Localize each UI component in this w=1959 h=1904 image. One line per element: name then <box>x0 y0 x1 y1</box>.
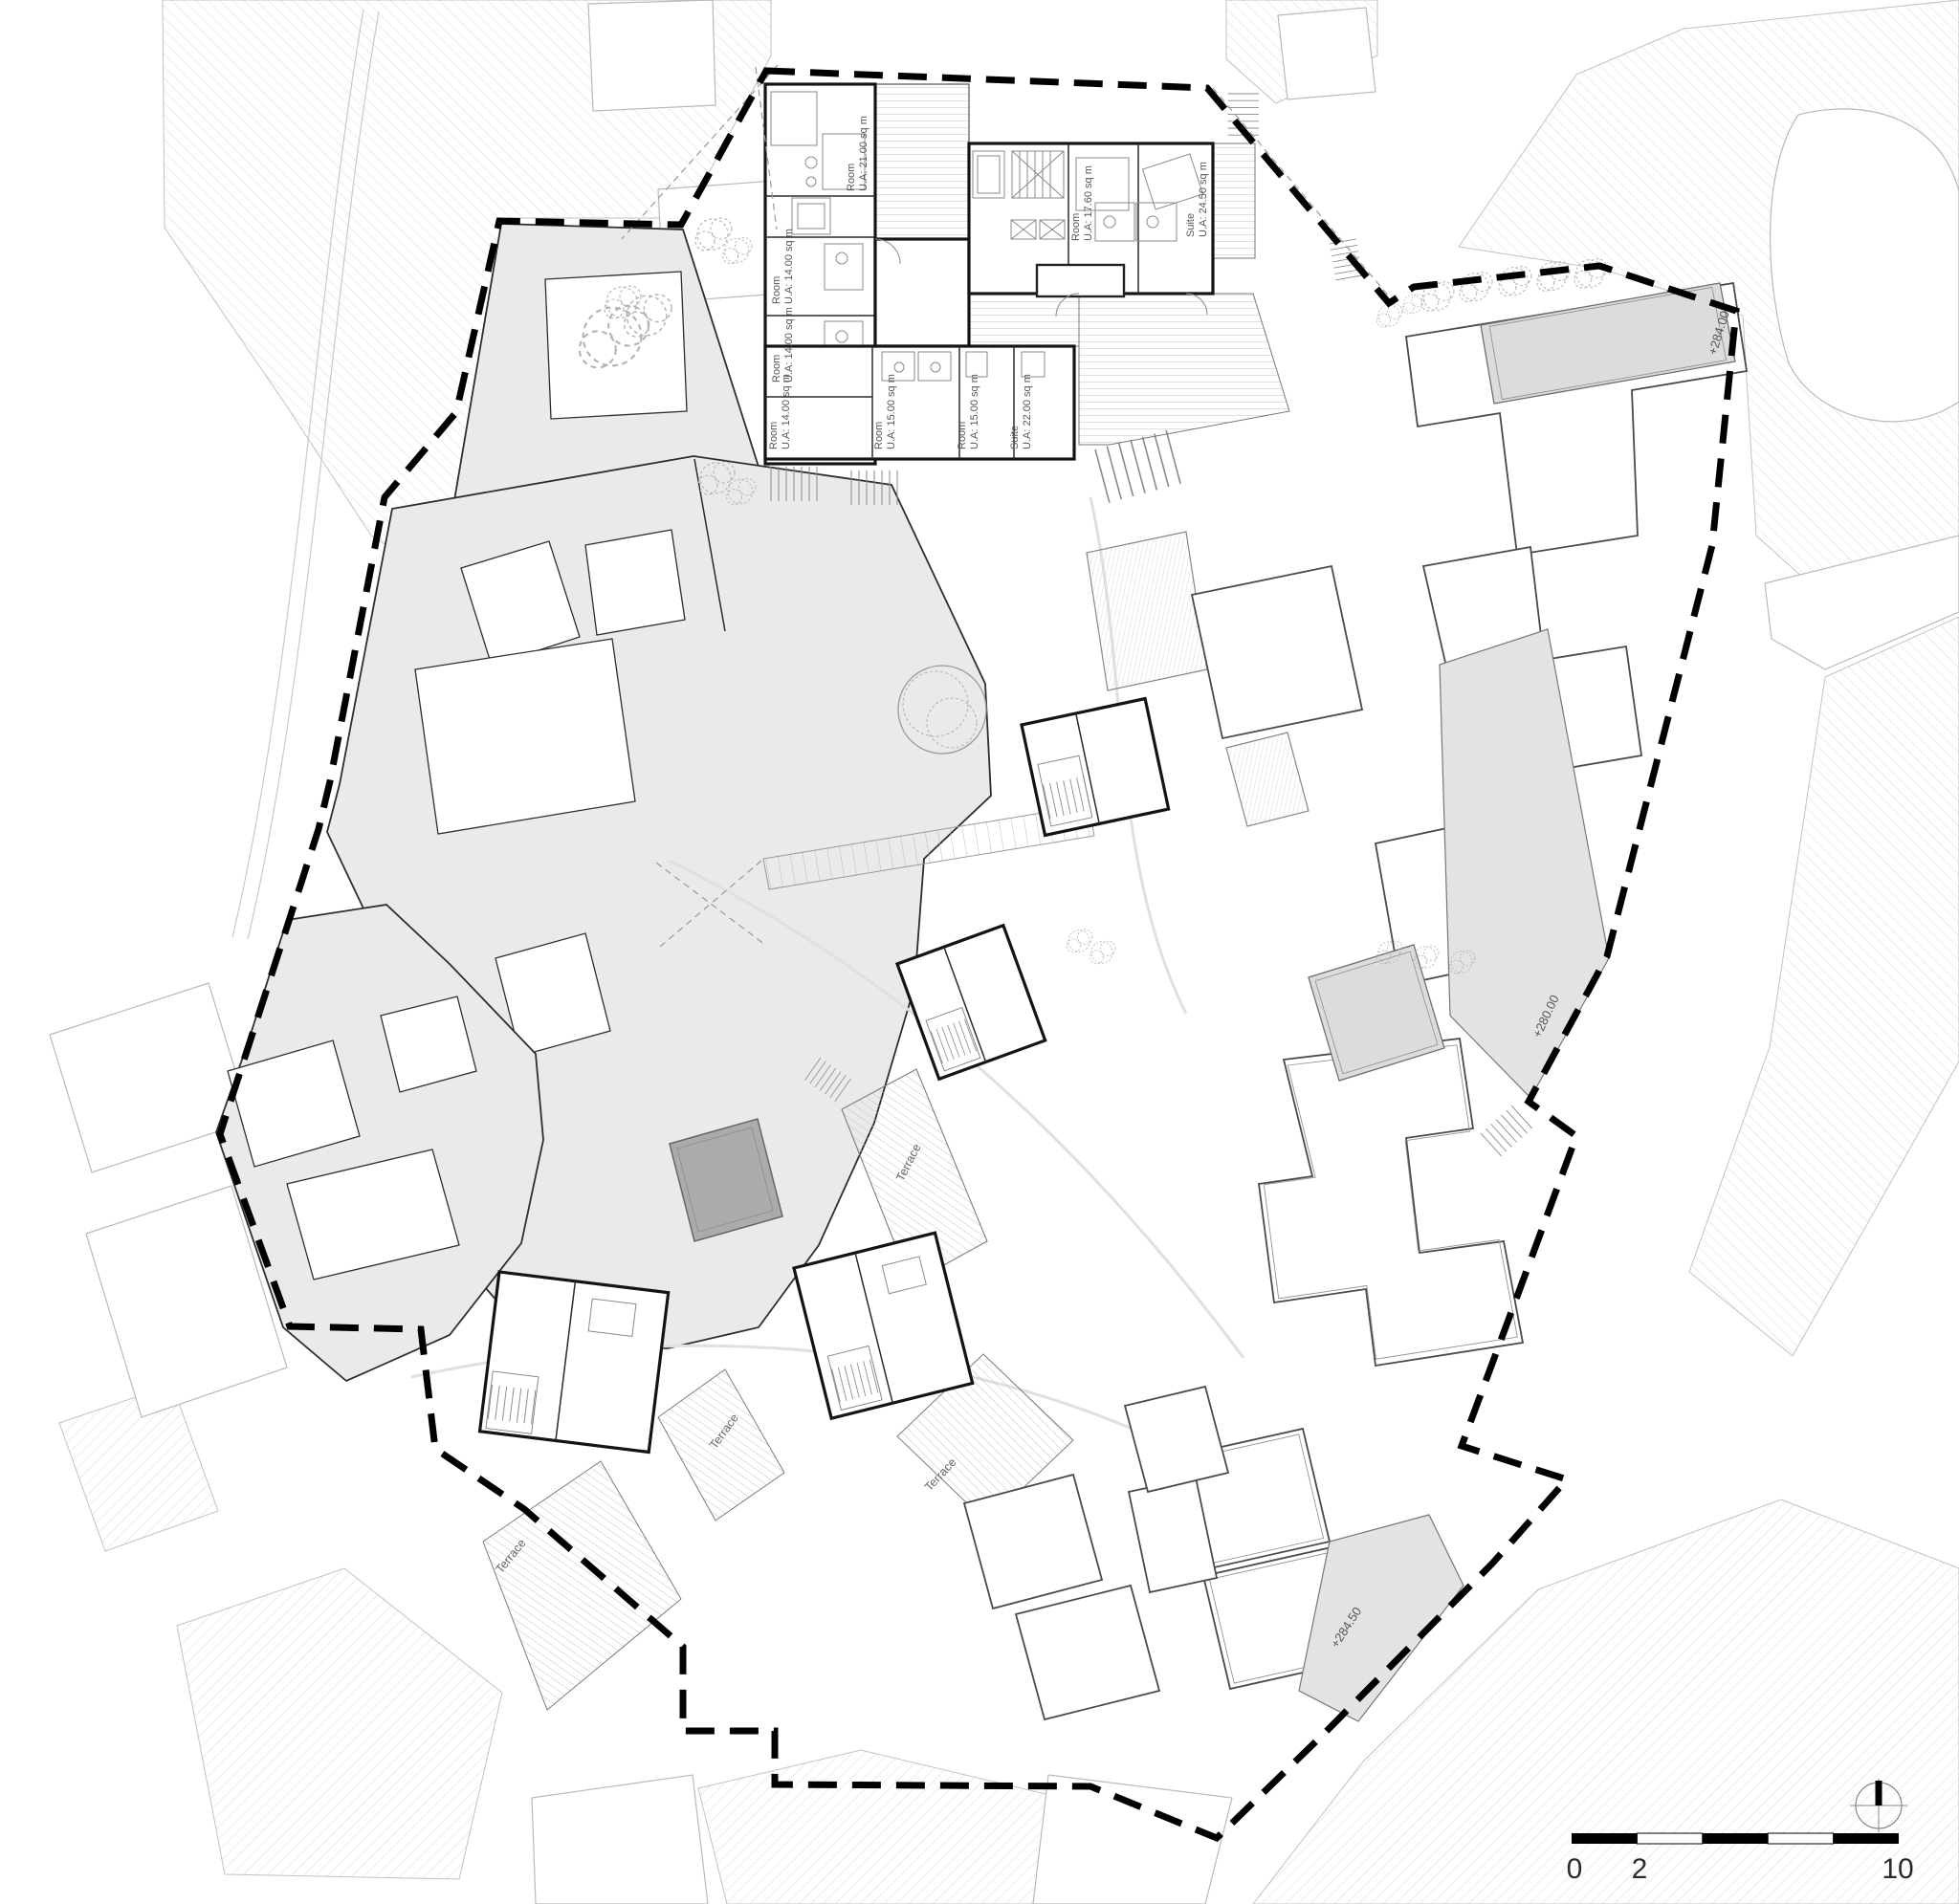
svg-text:Room: Room <box>957 422 968 449</box>
svg-text:U.A: 15.00 sq m: U.A: 15.00 sq m <box>969 374 980 449</box>
svg-text:Room: Room <box>1070 213 1082 241</box>
svg-text:Room: Room <box>768 422 780 449</box>
svg-text:U.A: 21.00 sq m: U.A: 21.00 sq m <box>858 116 869 191</box>
svg-text:U.A: 17.60 sq m: U.A: 17.60 sq m <box>1083 165 1094 241</box>
svg-text:U.A: 14.00 sq m: U.A: 14.00 sq m <box>783 307 795 383</box>
svg-text:Room: Room <box>873 422 885 449</box>
svg-text:Suite: Suite <box>1009 426 1021 449</box>
svg-text:Suite: Suite <box>1185 213 1197 237</box>
svg-text:U.A: 22.00 sq m: U.A: 22.00 sq m <box>1022 374 1033 449</box>
svg-text:U.A: 14.00 sq m: U.A: 14.00 sq m <box>783 229 795 304</box>
svg-text:Room: Room <box>771 276 782 304</box>
svg-text:U.A: 14.00 sq m: U.A: 14.00 sq m <box>781 374 792 449</box>
site-plan-drawing: Room U.A: 21.00 sq m Room U.A: 14.00 sq … <box>0 0 1959 1904</box>
svg-text:Room: Room <box>846 164 857 191</box>
scale-tick-2: 2 <box>1632 1853 1648 1885</box>
scale-tick-0: 0 <box>1567 1853 1583 1885</box>
svg-text:U.A: 15.00 sq m: U.A: 15.00 sq m <box>886 374 897 449</box>
svg-text:U.A: 24.50 sq m: U.A: 24.50 sq m <box>1198 162 1209 237</box>
scale-tick-10: 10 <box>1882 1853 1913 1885</box>
